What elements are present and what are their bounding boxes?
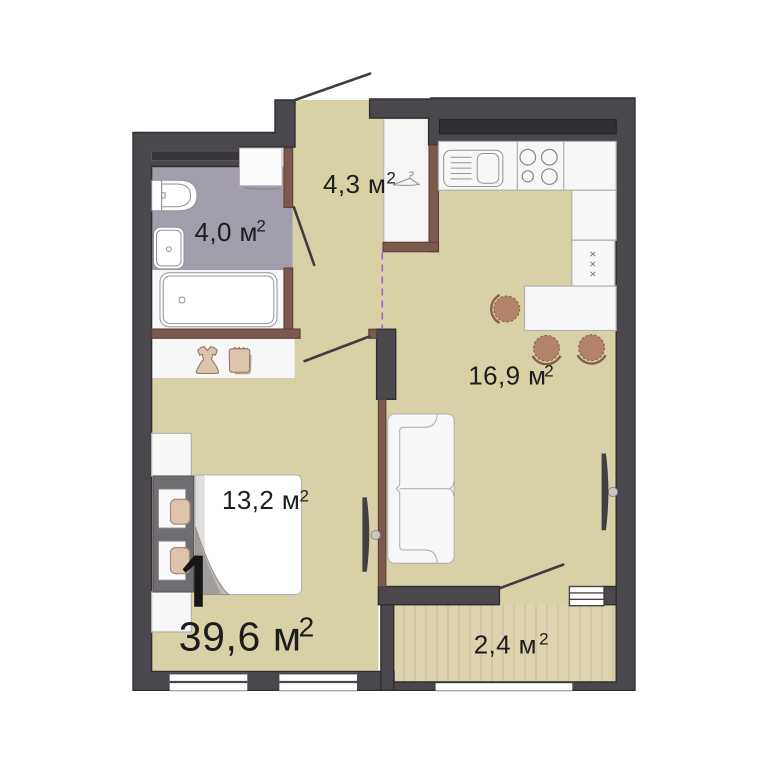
- svg-text:16,9 м: 16,9 м: [468, 361, 546, 391]
- svg-text:13,2 м: 13,2 м: [222, 485, 300, 515]
- svg-text:2: 2: [300, 486, 309, 505]
- svg-text:2: 2: [544, 362, 553, 381]
- svg-text:2,4 м: 2,4 м: [474, 630, 537, 660]
- svg-text:39,6 м: 39,6 м: [179, 614, 302, 660]
- svg-text:4,0 м: 4,0 м: [195, 217, 258, 247]
- svg-text:2: 2: [256, 217, 265, 236]
- svg-text:4,3 м: 4,3 м: [323, 169, 386, 199]
- svg-text:2: 2: [299, 611, 315, 642]
- svg-text:2: 2: [539, 629, 548, 648]
- svg-text:2: 2: [386, 169, 395, 188]
